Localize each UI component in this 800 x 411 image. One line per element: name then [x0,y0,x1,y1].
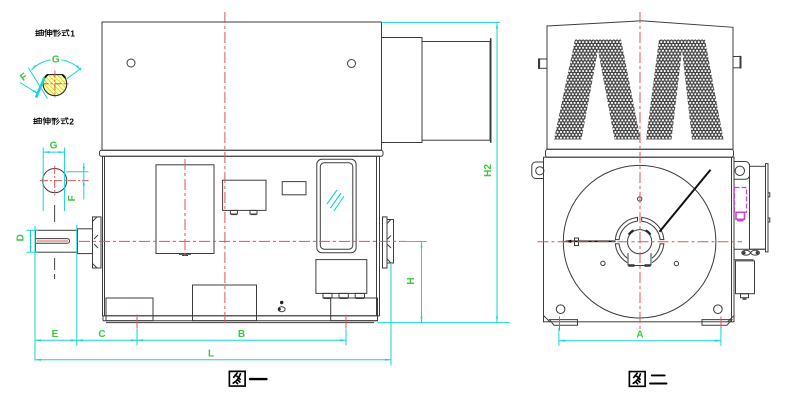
svg-text:A: A [636,329,643,340]
svg-text:D: D [16,234,27,241]
svg-text:H2: H2 [483,164,494,177]
svg-text:2: 2 [69,117,74,127]
svg-text:E: E [52,329,59,340]
svg-text:G: G [50,141,58,152]
svg-text:B: B [238,329,245,340]
svg-text:G: G [52,55,60,66]
svg-text:L: L [208,349,214,360]
svg-text:C: C [98,329,105,340]
svg-text:1: 1 [70,29,75,39]
svg-text:F: F [67,195,78,201]
svg-text:H: H [406,277,417,284]
